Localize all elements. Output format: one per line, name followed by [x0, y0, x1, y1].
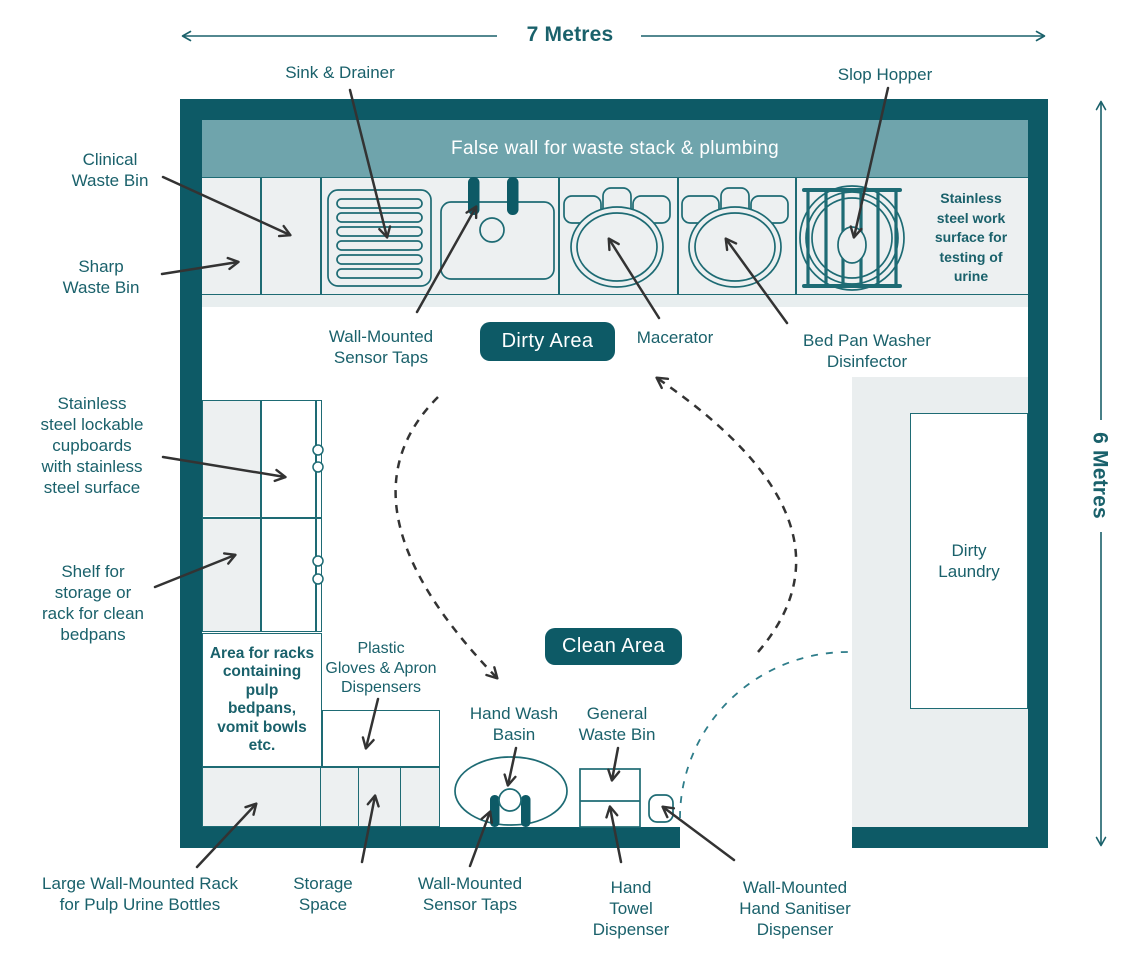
cupboards-label: Stainless steel lockable cupboards with … [12, 393, 172, 498]
sink-icon [441, 177, 554, 279]
sensor-taps-bottom-label: Wall-Mounted Sensor Taps [390, 873, 550, 915]
work-surface-label: Stainless steel work surface for testing… [921, 189, 1021, 287]
arrow-large-rack [197, 804, 256, 867]
arrow-storage-space [362, 796, 375, 862]
arrow-slop-hopper [854, 88, 888, 237]
workflow-arc-clean-to-dirty [657, 378, 796, 652]
sink-drainer-label: Sink & Drainer [270, 62, 410, 83]
arrow-gloves-dispenser [366, 699, 378, 748]
arrow-sharp-waste-bin [162, 262, 238, 274]
storage-space-label: Storage Space [263, 873, 383, 915]
hand-sanitiser-label: Wall-Mounted Hand Sanitiser Dispenser [715, 877, 875, 940]
general-waste-bin-icon [580, 769, 640, 827]
cupboard-handle-icons [313, 445, 323, 584]
sharp-waste-bin-label: Sharp Waste Bin [31, 256, 171, 298]
height-dimension-label: 6 Metres [1090, 406, 1111, 546]
slop-hopper-icon [800, 186, 904, 290]
width-dimension-label: 7 Metres [500, 24, 640, 45]
shelf-label: Shelf for storage or rack for clean bedp… [13, 561, 173, 645]
arrow-cupboards [163, 457, 285, 477]
sensor-tap-icon [490, 795, 500, 827]
general-waste-bin-label: General Waste Bin [547, 703, 687, 745]
slop-hopper-label: Slop Hopper [815, 64, 955, 85]
hand-towel-label: Hand Towel Dispenser [571, 877, 691, 940]
workflow-arc-dirty-to-clean [396, 397, 497, 678]
sluice-room-floor-plan: False wall for waste stack & plumbing Di… [0, 0, 1144, 959]
sensor-tap-icon [507, 177, 519, 215]
hand-sanitiser-icon [649, 795, 673, 822]
arrow-hand-sanitiser [663, 807, 734, 860]
clinical-waste-bin-label: Clinical Waste Bin [40, 149, 180, 191]
door-swing-arc [680, 652, 850, 818]
sensor-tap-icon [521, 795, 531, 827]
arrow-sensor-taps-top [417, 207, 476, 312]
sensor-taps-top-label: Wall-Mounted Sensor Taps [301, 326, 461, 368]
macerator-label: Macerator [605, 327, 745, 348]
bedpan-washer-label: Bed Pan Washer Disinfector [782, 330, 952, 372]
macerator-icon [564, 188, 670, 287]
arrow-clinical-waste-bin [163, 177, 290, 235]
large-rack-label: Large Wall-Mounted Rack for Pulp Urine B… [10, 873, 270, 915]
gloves-label: Plastic Gloves & Apron Dispensers [301, 639, 461, 698]
bedpan-washer-icon [682, 188, 788, 287]
arrow-sink-drainer [350, 90, 387, 237]
